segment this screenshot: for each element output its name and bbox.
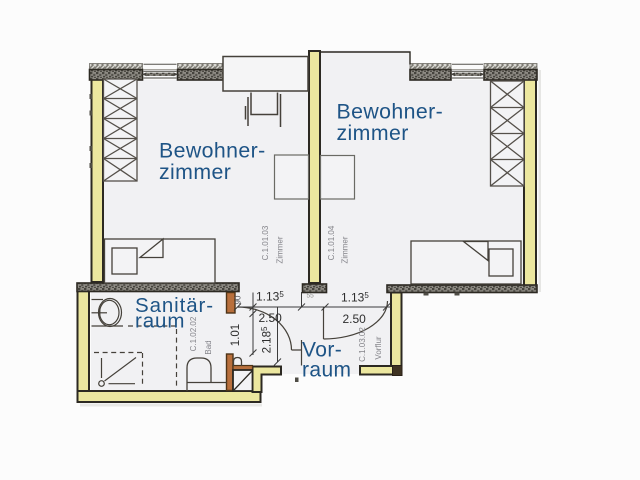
svg-text:1.01: 1.01 (230, 324, 242, 346)
svg-text:Bad: Bad (204, 340, 213, 354)
svg-text:55: 55 (307, 293, 315, 300)
svg-text:Bewohner-: Bewohner- (159, 139, 266, 163)
svg-text:Vorflur: Vorflur (374, 336, 383, 359)
svg-text:2.50: 2.50 (343, 312, 367, 326)
svg-text:Zimmer: Zimmer (341, 236, 350, 263)
svg-text:2.50: 2.50 (259, 311, 283, 325)
svg-text:90: 90 (234, 295, 243, 304)
svg-text:Zimmer: Zimmer (276, 236, 285, 263)
svg-text:C.1.01.03: C.1.01.03 (261, 225, 270, 260)
svg-text:zimmer: zimmer (337, 121, 409, 145)
svg-text:Bewohner-: Bewohner- (337, 100, 444, 124)
svg-text:raum: raum (302, 359, 351, 382)
svg-text:C.1.01.04: C.1.01.04 (327, 225, 336, 260)
svg-text:raum: raum (135, 310, 185, 333)
svg-text:zimmer: zimmer (159, 160, 231, 184)
svg-text:C.1.03.02: C.1.03.02 (358, 327, 367, 362)
svg-text:C.1.02.02: C.1.02.02 (189, 316, 198, 351)
